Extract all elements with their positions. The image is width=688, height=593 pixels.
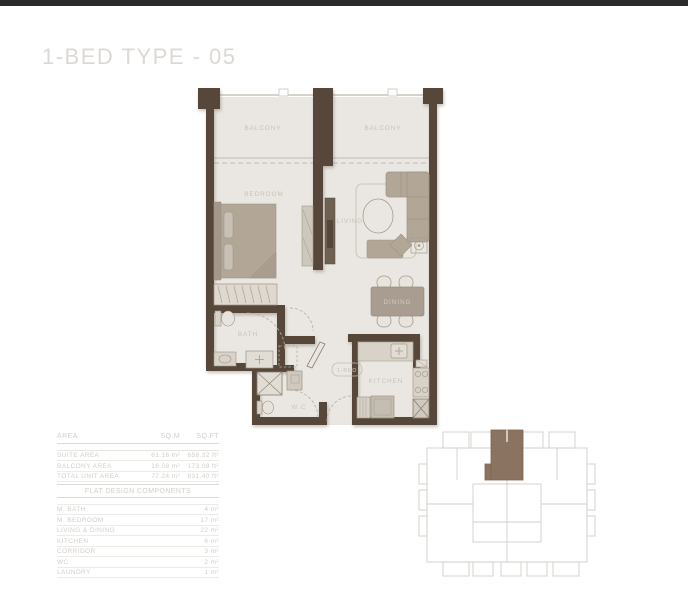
row-value: 17 m² <box>138 515 219 526</box>
balcony-left-label: BALCONY <box>244 125 281 132</box>
row-label: M. BEDROOM <box>57 515 138 526</box>
row-sqm: 77.24 m² <box>141 471 180 482</box>
row-value: 22 m² <box>138 525 219 536</box>
components-title: FLAT DESIGN COMPONENTS <box>57 485 219 498</box>
kitchen-counter <box>358 342 413 361</box>
row-value: 4 m² <box>138 504 219 515</box>
table-row-wc: WC 2 m² <box>57 557 219 568</box>
area-header: AREA <box>57 431 141 444</box>
row-value: 1 m² <box>138 567 219 578</box>
dining-label: DINING <box>383 299 411 306</box>
bedroom-label: BEDROOM <box>244 191 284 198</box>
key-plan-highlighted-unit <box>485 430 523 480</box>
wc-label: W.C <box>292 404 307 411</box>
row-sqft: 173.08 ft² <box>180 461 219 472</box>
table-row-balcony-area: BALCONY AREA 16.08 m² 173.08 ft² <box>57 461 219 472</box>
brochure-page: 1-BED TYPE - 05 <box>0 0 688 593</box>
row-value: 6 m² <box>138 536 219 547</box>
bath-label: BATH <box>238 331 258 338</box>
row-sqm: 16.08 m² <box>141 461 180 472</box>
row-value: 3 m² <box>138 546 219 557</box>
bedroom-sliding-wardrobe <box>302 206 313 266</box>
row-label: BALCONY AREA <box>57 461 141 472</box>
table-row-m-bedroom: M. BEDROOM 17 m² <box>57 515 219 526</box>
row-label: M. BATH <box>57 504 138 515</box>
laundry-appliances <box>357 396 394 418</box>
components-table: FLAT DESIGN COMPONENTS M. BATH 4 m² M. B… <box>57 484 219 578</box>
components-title-row: FLAT DESIGN COMPONENTS <box>57 485 219 498</box>
balcony-right-label: BALCONY <box>364 125 401 132</box>
row-sqft: 658.32 ft² <box>180 450 219 461</box>
row-label: SUITE AREA <box>57 450 141 461</box>
row-value: 2 m² <box>138 557 219 568</box>
row-label: CORRIDOR <box>57 546 138 557</box>
row-label: KITCHEN <box>57 536 138 547</box>
table-row-corridor: CORRIDOR 3 m² <box>57 546 219 557</box>
row-sqm: 61.16 m² <box>141 450 180 461</box>
key-plan <box>419 430 595 576</box>
table-row-laundry: LAUNDRY 1 m² <box>57 567 219 578</box>
living-label: LIVING <box>337 218 364 225</box>
bedroom-bed <box>214 202 276 280</box>
row-sqft: 831.40 ft² <box>180 471 219 482</box>
unit-floor-plan: 1-BED BALCONY BALCONY BEDROOM LIVING DIN… <box>198 88 443 425</box>
table-row-total-unit-area: TOTAL UNIT AREA 77.24 m² 831.40 ft² <box>57 471 219 482</box>
table-row-living-dining: LIVING & DINING 22 m² <box>57 525 219 536</box>
kitchen-fridge <box>413 399 429 418</box>
sqm-header: SQ.M <box>141 431 180 444</box>
row-label: LAUNDRY <box>57 567 138 578</box>
kitchen-label: KITCHEN <box>369 378 404 385</box>
area-table-header-row: AREA SQ.M SQ.FT <box>57 431 219 444</box>
row-label: LIVING & DINING <box>57 525 138 536</box>
table-row-kitchen: KITCHEN 6 m² <box>57 536 219 547</box>
area-table: AREA SQ.M SQ.FT SUITE AREA 61.16 m² 658.… <box>57 431 219 482</box>
table-row-m-bath: M. BATH 4 m² <box>57 504 219 515</box>
unit-tag-label: 1-BED <box>337 368 357 374</box>
row-label: WC <box>57 557 138 568</box>
table-row-suite-area: SUITE AREA 61.16 m² 658.32 ft² <box>57 450 219 461</box>
sqft-header: SQ.FT <box>180 431 219 444</box>
row-label: TOTAL UNIT AREA <box>57 471 141 482</box>
tv-console <box>325 198 335 264</box>
bedroom-wardrobe <box>214 284 277 305</box>
